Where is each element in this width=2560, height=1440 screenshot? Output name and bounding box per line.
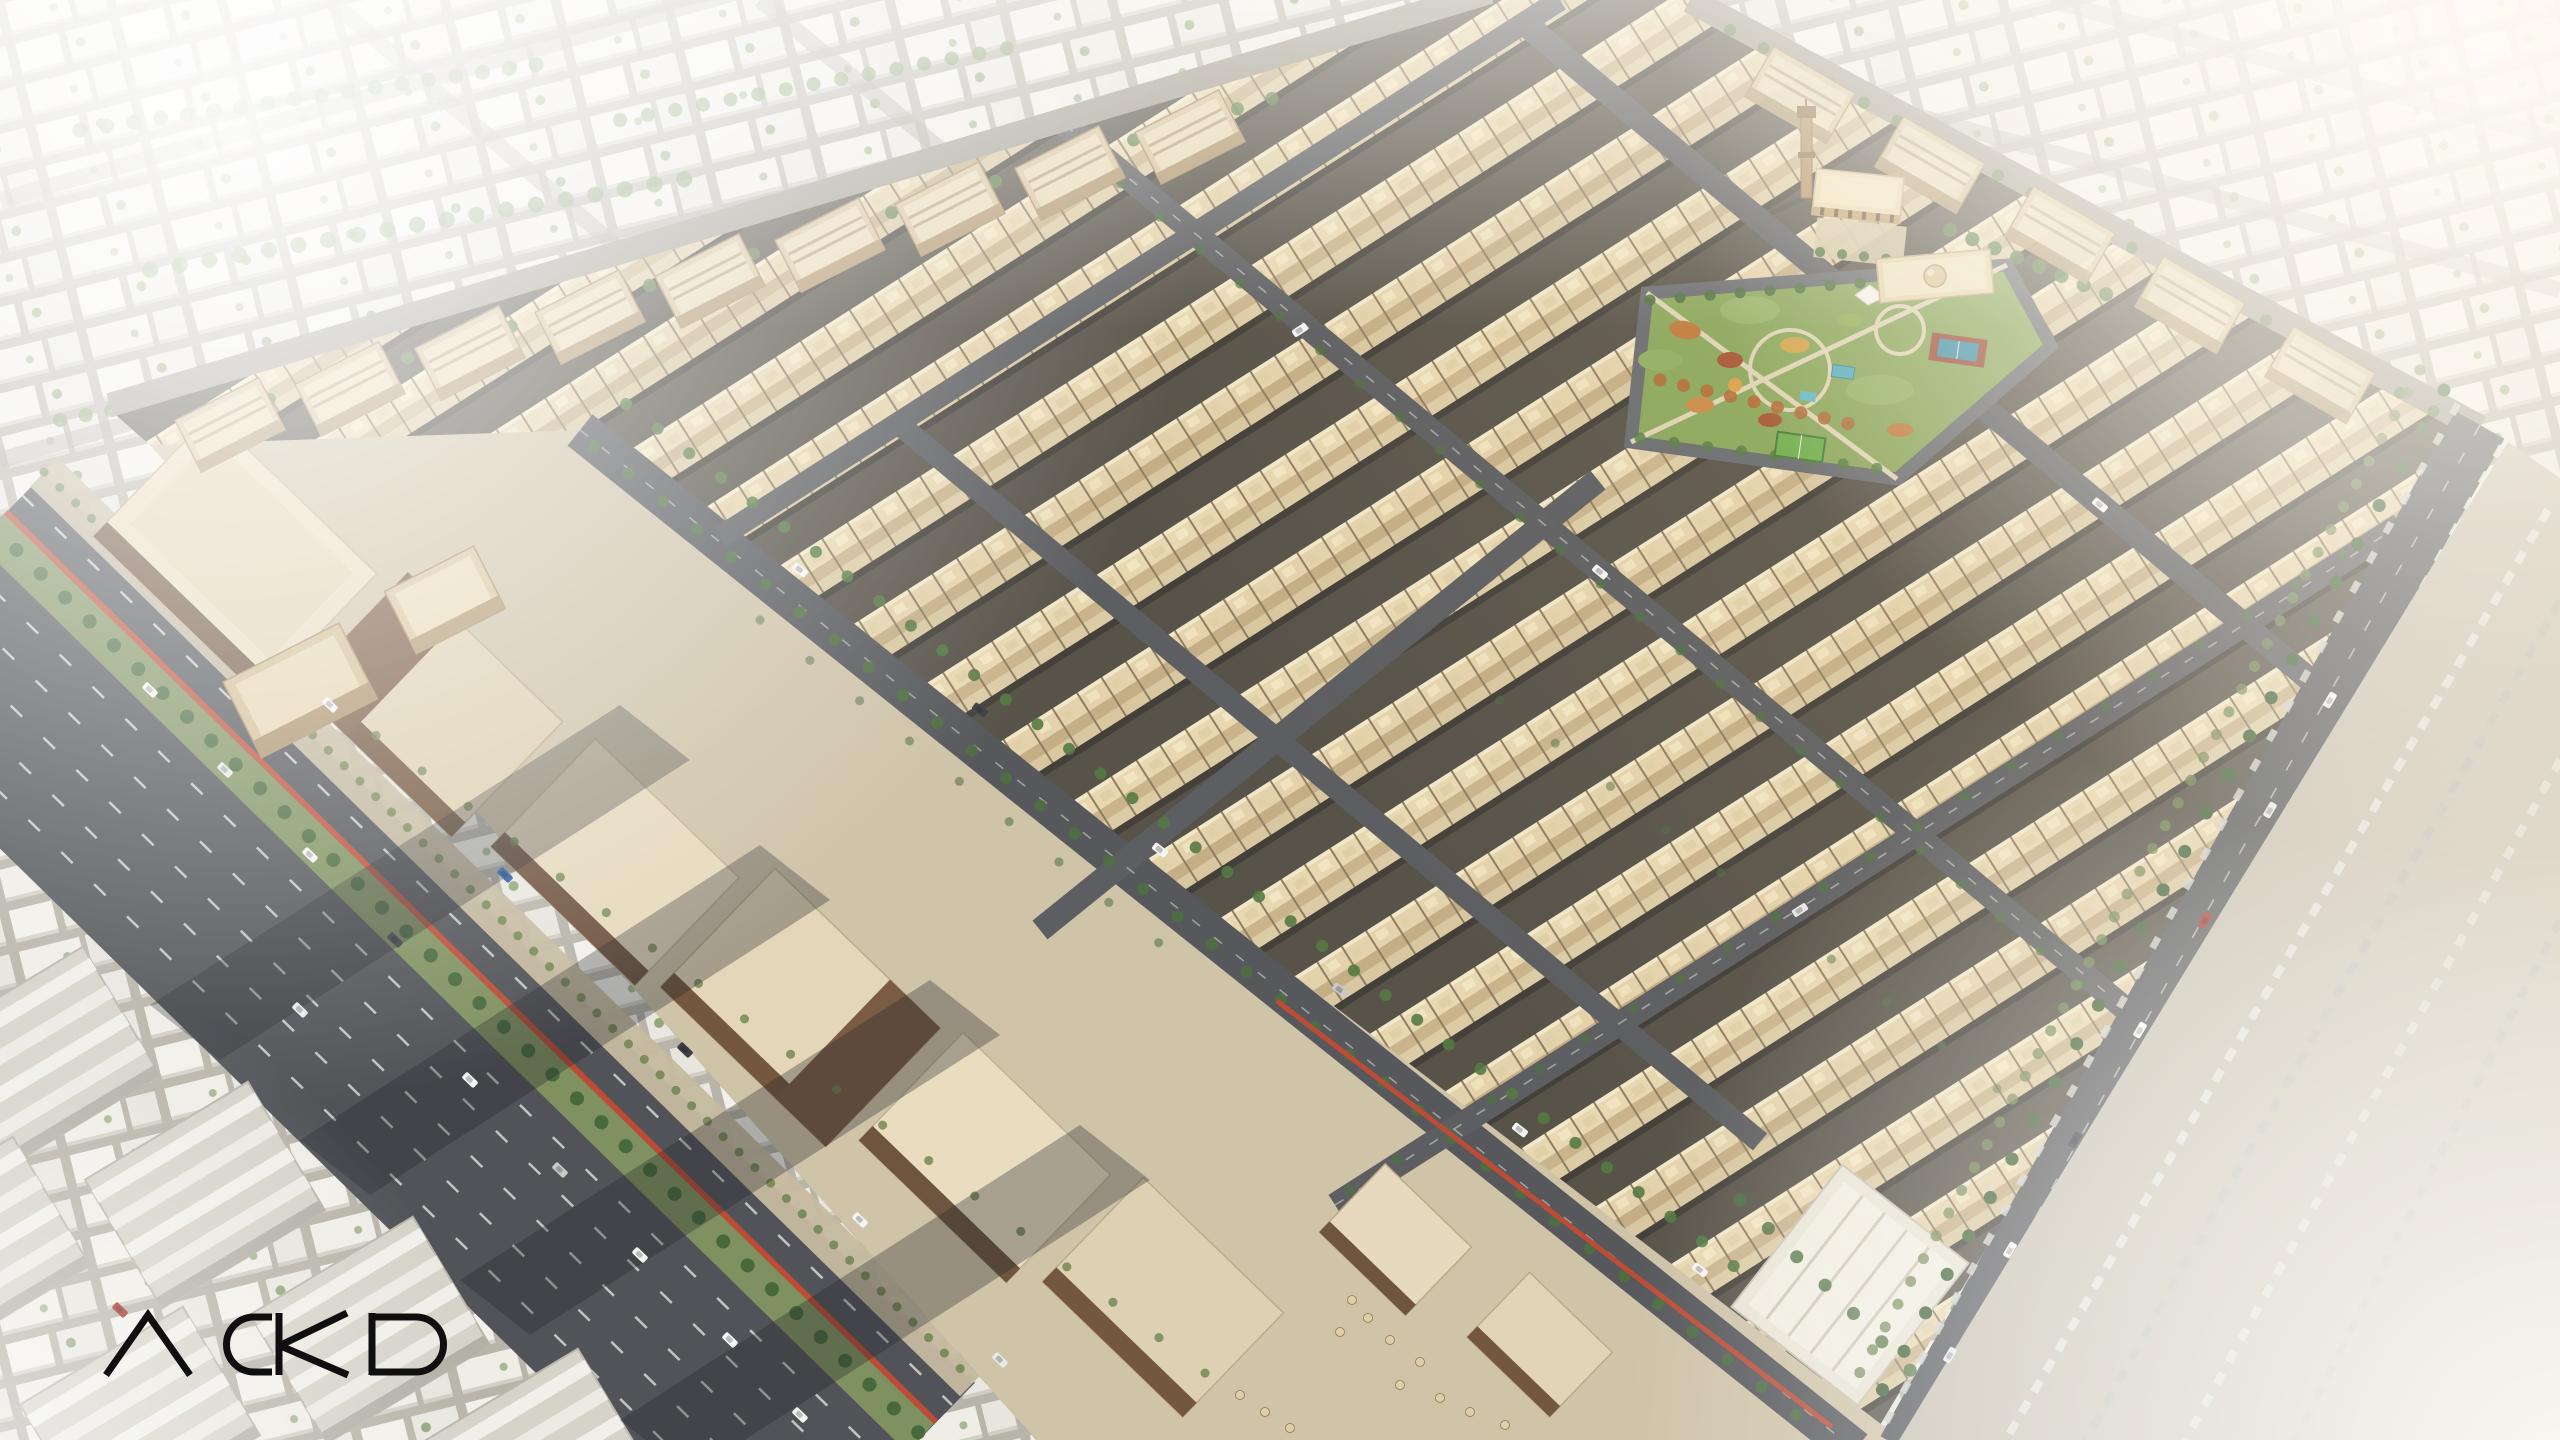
haze-overlay (0, 0, 2560, 1440)
aerial-render-canvas: ACKD (0, 0, 2560, 1440)
aerial-render (0, 0, 2560, 1440)
